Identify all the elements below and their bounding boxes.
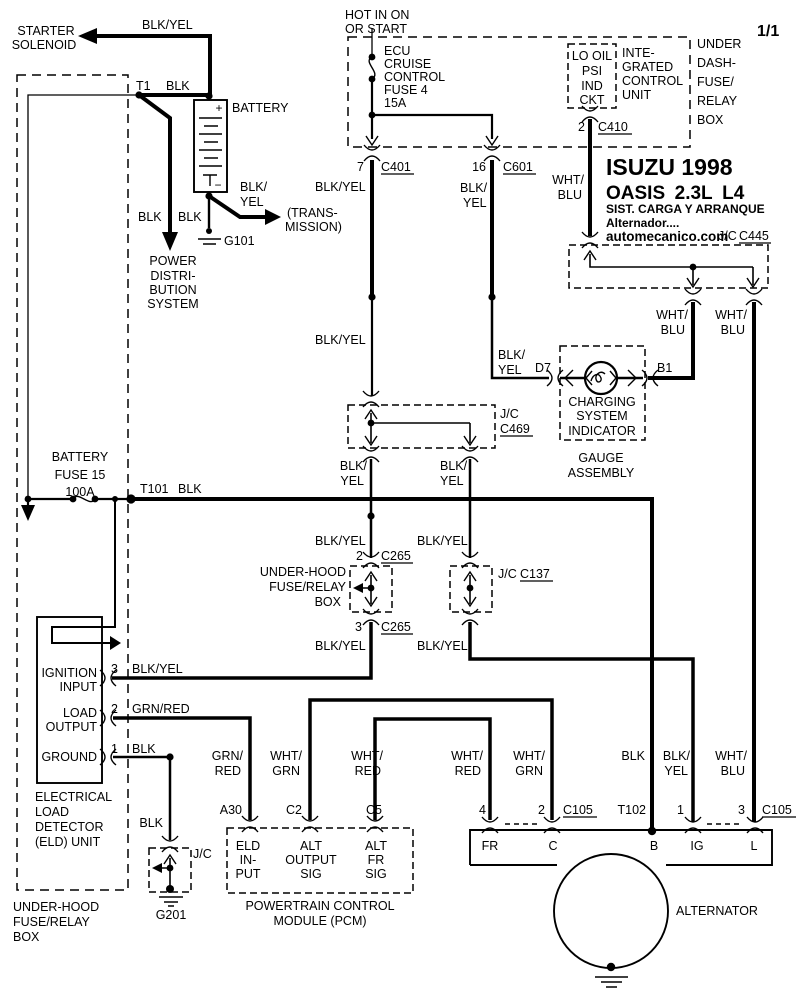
label-under-dash: BOX (697, 113, 724, 127)
label-trans-color: YEL (240, 195, 264, 209)
label-pin-2-c265: 2 (356, 549, 363, 563)
label-c401-color: BLK/YEL (315, 180, 366, 194)
junction-dot-ground (166, 753, 173, 760)
label-a30: A30 (220, 803, 242, 817)
label-c265-dn-right-color: BLK/YEL (417, 639, 468, 653)
label-underhood-mid: UNDER-HOOD (260, 565, 346, 579)
label-d7: D7 (535, 361, 551, 375)
label-term-ig: IG (690, 839, 703, 853)
label-c410-color: BLU (558, 188, 582, 202)
label-d7-color: BLK/ (498, 348, 526, 362)
title-site: automecanico.com (606, 229, 728, 244)
arrow-down-icon (21, 505, 35, 521)
wire-blkyel-to-ig (470, 622, 693, 822)
junction-dot-battery-positive (205, 92, 212, 99)
label-sheet-number: 1/1 (757, 23, 779, 40)
label-ig-color: BLK/ (663, 749, 691, 763)
arrow-down-icon (162, 232, 178, 251)
label-term-fr: FR (482, 839, 499, 853)
bulb-icon (585, 362, 617, 394)
label-pin-7: 7 (357, 160, 364, 174)
wire-c469-internal (371, 413, 470, 443)
label-blk-ground: BLK (178, 210, 202, 224)
label-pin-16: 16 (472, 160, 486, 174)
label-c601-color: YEL (463, 196, 487, 210)
label-eld-unit: ELECTRICAL (35, 790, 112, 804)
label-l-color: WHT/ (715, 749, 747, 763)
label-pin-3-eld: 3 (111, 662, 118, 676)
label-power-dist: POWER (149, 254, 196, 268)
arrow-left-icon (78, 28, 97, 44)
label-power-dist: BUTION (149, 283, 196, 297)
label-c401: C401 (381, 160, 411, 174)
label-jc-g201: J/C (193, 847, 212, 861)
junction-dot-c469 (368, 420, 375, 427)
label-eld-unit: LOAD (35, 805, 69, 819)
label-lo-oil: PSI (582, 64, 602, 78)
label-blk-power: BLK (138, 210, 162, 224)
label-c265-up-right-color: BLK/YEL (417, 534, 468, 548)
arrow-left-icon (353, 583, 363, 593)
label-c105-left: C105 (563, 803, 593, 817)
label-pcm-eld-input: IN- (240, 853, 257, 867)
connector-c445-exit-icons (685, 289, 762, 305)
arrow-right-icon (110, 636, 121, 650)
label-t101: T101 (140, 482, 169, 496)
label-lo-oil: IND (581, 79, 603, 93)
underhood-fuse-relay-box-outline (17, 75, 128, 890)
junction-dot-fuse-left (25, 496, 32, 503)
label-pcm: POWERTRAIN CONTROL (245, 899, 394, 913)
label-b-color: BLK (621, 749, 645, 763)
label-pcm-alt-output: SIG (300, 867, 322, 881)
label-icu: INTE- (622, 46, 655, 60)
label-term-l: L (751, 839, 758, 853)
label-g201: G201 (156, 908, 187, 922)
junction-dot-c137 (467, 585, 474, 592)
g101-ground-icon (198, 228, 221, 244)
wire-fuse-out-right (372, 115, 492, 139)
label-transmission: MISSION) (285, 220, 342, 234)
label-pin-1-eld: 1 (111, 742, 118, 756)
label-c601-color: BLK/ (460, 181, 488, 195)
label-pcm-alt-output: OUTPUT (285, 853, 337, 867)
label-term-c: C (548, 839, 557, 853)
label-t1: T1 (136, 79, 151, 93)
label-battery-fuse: FUSE 15 (55, 468, 106, 482)
label-ignition-input: INPUT (60, 680, 98, 694)
label-pin-1-c105: 1 (677, 803, 684, 817)
terminal-dot-t102 (648, 827, 656, 835)
label-c265-bottom: C265 (381, 620, 411, 634)
label-load-output: LOAD (63, 706, 97, 720)
junction-dot-bus-left (367, 512, 374, 519)
label-fr-color: RED (455, 764, 481, 778)
fuse-icon (369, 54, 376, 83)
label-underhood-mid: FUSE/RELAY (269, 580, 347, 594)
label-c265-up-left-color: BLK/YEL (315, 534, 366, 548)
label-underhood-bottom: FUSE/RELAY (13, 915, 91, 929)
wire-starter-feed (97, 36, 210, 95)
label-d7-color: YEL (498, 363, 522, 377)
label-c445: C445 (739, 229, 769, 243)
label-c5: C5 (366, 803, 382, 817)
label-ig-color: YEL (664, 764, 688, 778)
label-indicator: SYSTEM (576, 409, 627, 423)
label-c445-right-color: BLU (721, 323, 745, 337)
label-fr-color: WHT/ (451, 749, 483, 763)
label-c265-top: C265 (381, 549, 411, 563)
label-pin-2-c410: 2 (578, 120, 585, 134)
alternator-circle (554, 854, 668, 968)
label-pin-3-c265: 3 (355, 620, 362, 634)
label-c469-left-color: BLK/ (340, 459, 368, 473)
label-batt-feed-color: BLK/YEL (142, 18, 193, 32)
label-indicator: CHARGING (568, 395, 635, 409)
label-ecu-fuse: ECU (384, 44, 410, 58)
title-system: SIST. CARGA Y ARRANQUE (606, 202, 765, 216)
label-underhood-mid: BOX (315, 595, 342, 609)
label-trans-color: BLK/ (240, 180, 268, 194)
label-c601: C601 (503, 160, 533, 174)
label-starter-solenoid: SOLENOID (12, 38, 77, 52)
label-underhood-bottom: UNDER-HOOD (13, 900, 99, 914)
label-hot-in-on: OR START (345, 22, 407, 36)
label-pin-2-c105: 2 (538, 803, 545, 817)
label-ecu-fuse: 15A (384, 96, 407, 110)
label-l-color: BLU (721, 764, 745, 778)
label-alternator: ALTERNATOR (676, 904, 758, 918)
label-c410-color: WHT/ (552, 173, 584, 187)
title-vehicle: ISUZU 1998 (606, 154, 733, 180)
label-pcm-alt-fr: SIG (365, 867, 387, 881)
label-pcm-alt-output: ALT (300, 839, 322, 853)
label-under-dash: FUSE/ (697, 75, 734, 89)
label-c5-color: WHT/ (351, 749, 383, 763)
label-c401-mid-color: BLK/YEL (315, 333, 366, 347)
label-icu: UNIT (622, 88, 652, 102)
arrow-chevrons-exit (366, 136, 498, 145)
junction-dot-c265 (368, 585, 375, 592)
wiring-diagram-page: STARTER SOLENOID BLK/YEL T1 BLK BATTERY … (0, 0, 800, 992)
title-subsystem: Alternador.... (606, 216, 679, 230)
label-under-dash: DASH- (697, 56, 736, 70)
label-under-dash: RELAY (697, 94, 738, 108)
label-icu: GRATED (622, 60, 673, 74)
label-jc445-prefix: J/C (718, 229, 737, 243)
label-pcm-eld-input: ELD (236, 839, 260, 853)
label-gauge-assembly: ASSEMBLY (568, 466, 635, 480)
label-ecu-fuse: CONTROL (384, 70, 445, 84)
connector-pcm-icons (242, 816, 383, 832)
label-c-color: GRN (515, 764, 543, 778)
g201-ground-icon (159, 885, 183, 906)
label-c2-color: GRN (272, 764, 300, 778)
label-pcm-eld-input: PUT (236, 867, 261, 881)
wire-eld-feed-jog (52, 499, 115, 643)
label-indicator: INDICATOR (568, 424, 636, 438)
arrow-left-icon (152, 863, 162, 873)
label-lo-oil: CKT (580, 93, 605, 107)
label-ground-color: BLK (132, 742, 156, 756)
label-c469: C469 (500, 422, 530, 436)
text-labels: STARTER SOLENOID BLK/YEL T1 BLK BATTERY … (12, 8, 796, 944)
label-hot-in-on: HOT IN ON (345, 8, 409, 22)
label-c469-left-color: YEL (340, 474, 364, 488)
label-load-output: OUTPUT (46, 720, 98, 734)
c265-c137-section (112, 552, 693, 822)
label-term-b: B (650, 839, 658, 853)
label-a30-color: GRN/ (212, 749, 244, 763)
label-t101-color: BLK (178, 482, 202, 496)
alternator-section (470, 817, 772, 987)
wire-c445-internal (590, 254, 753, 285)
label-pcm: MODULE (PCM) (273, 914, 366, 928)
label-ground: GROUND (41, 750, 97, 764)
label-eld-unit: (ELD) UNIT (35, 835, 101, 849)
label-ecu-fuse: CRUISE (384, 57, 431, 71)
label-jc137-prefix: J/C (498, 567, 517, 581)
label-underhood-bottom: BOX (13, 930, 40, 944)
label-c105-right: C105 (762, 803, 792, 817)
junction-dot-g201 (167, 865, 174, 872)
label-icu: CONTROL (622, 74, 683, 88)
label-power-dist: DISTRI- (150, 269, 195, 283)
label-c2-color: WHT/ (270, 749, 302, 763)
alternator-box-outline (470, 830, 772, 865)
arrow-right-icon (265, 209, 281, 225)
label-power-dist: SYSTEM (147, 297, 198, 311)
label-pin-4: 4 (479, 803, 486, 817)
label-ignition-input: IGNITION (41, 666, 97, 680)
label-a30-color: RED (215, 764, 241, 778)
label-ignition-color: BLK/YEL (132, 662, 183, 676)
label-c410: C410 (598, 120, 628, 134)
label-battery-fuse: 100A (65, 485, 95, 499)
charging-indicator-section (547, 362, 658, 394)
label-pin-2-eld: 2 (111, 702, 118, 716)
label-battery-minus: − (214, 178, 221, 192)
label-c445-right-color: WHT/ (715, 308, 747, 322)
label-gauge-assembly: GAUGE (578, 451, 623, 465)
label-t102: T102 (618, 803, 647, 817)
label-pcm-alt-fr: ALT (365, 839, 387, 853)
label-pin-3-c105: 3 (738, 803, 745, 817)
label-lo-oil: LO OIL (572, 49, 612, 63)
label-load-color: GRN/RED (132, 702, 190, 716)
wire-t1-to-fuse (28, 95, 139, 499)
label-t1-color: BLK (166, 79, 190, 93)
label-starter-solenoid: STARTER (17, 24, 74, 38)
arrow-chevrons-c469 (365, 436, 476, 445)
label-battery: BATTERY (232, 101, 289, 115)
label-g101: G101 (224, 234, 255, 248)
label-c469-right-color: BLK/ (440, 459, 468, 473)
label-c469-right-color: YEL (440, 474, 464, 488)
label-pcm-alt-fr: FR (368, 853, 385, 867)
label-c5-color: RED (355, 764, 381, 778)
label-c265-dn-left-color: BLK/YEL (315, 639, 366, 653)
label-c137: C137 (520, 567, 550, 581)
label-battery-plus: + (215, 101, 222, 115)
arrow-chevrons-c445 (687, 278, 759, 287)
wiring-diagram: STARTER SOLENOID BLK/YEL T1 BLK BATTERY … (0, 0, 800, 992)
label-g201-color: BLK (139, 816, 163, 830)
label-c445-left-color: BLU (661, 323, 685, 337)
label-transmission: (TRANS- (287, 206, 338, 220)
label-c-color: WHT/ (513, 749, 545, 763)
label-b1: B1 (657, 361, 672, 375)
label-battery-fuse: BATTERY (52, 450, 109, 464)
label-ecu-fuse: FUSE 4 (384, 83, 428, 97)
label-jc469-prefix: J/C (500, 407, 519, 421)
label-under-dash: UNDER (697, 37, 741, 51)
label-eld-unit: DETECTOR (35, 820, 104, 834)
label-c445-left-color: WHT/ (656, 308, 688, 322)
junction-dot-c445 (690, 264, 697, 271)
label-c2: C2 (286, 803, 302, 817)
title-model: OASIS 2.3L L4 (606, 183, 745, 204)
